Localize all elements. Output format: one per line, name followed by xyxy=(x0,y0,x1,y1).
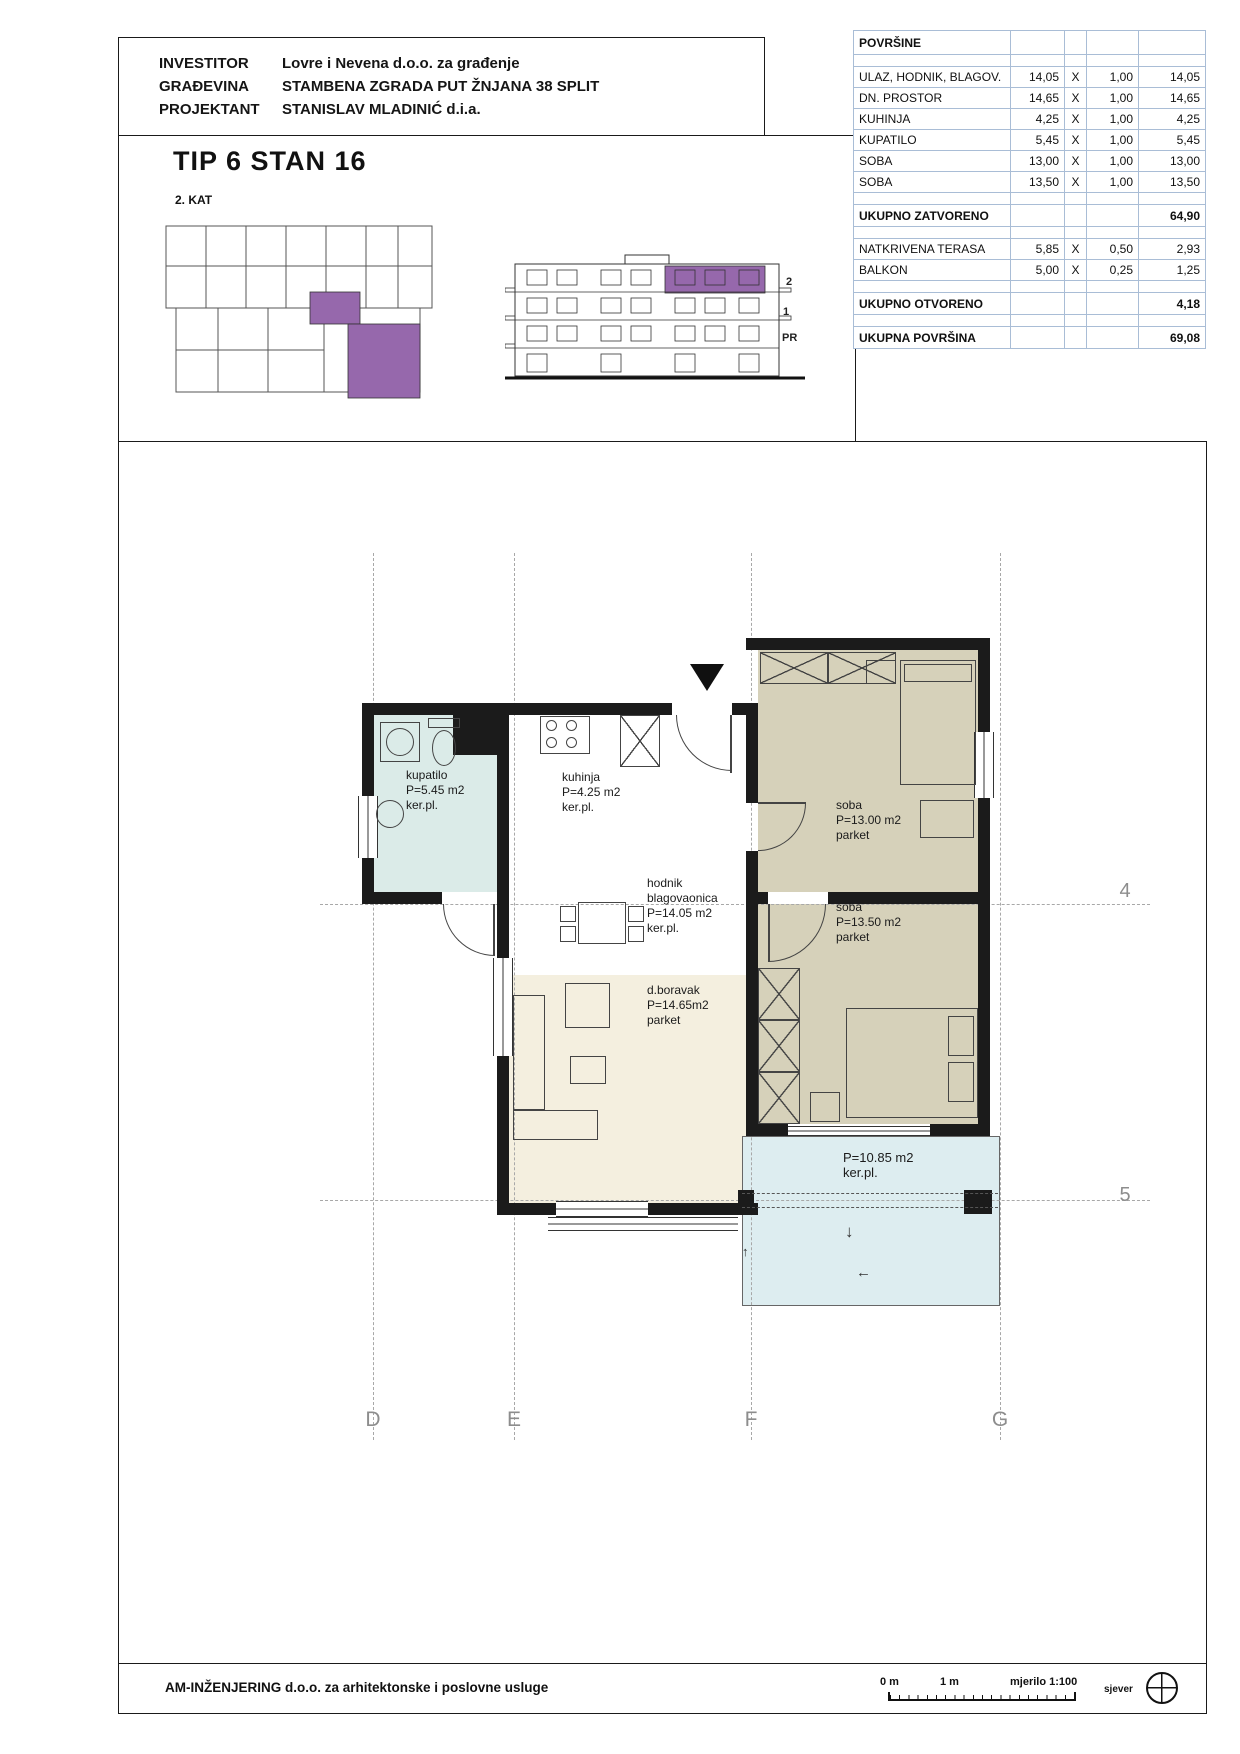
table-row: UKUPNO ZATVORENO64,90 xyxy=(854,205,1206,227)
cell-label: BALKON xyxy=(854,260,1011,281)
label-terasa: P=10.85 m2ker.pl. xyxy=(843,1150,913,1180)
terrace-dash-line xyxy=(742,1193,998,1194)
burner xyxy=(546,720,557,731)
door-leaf xyxy=(768,904,770,962)
chair xyxy=(628,906,644,922)
highlighted-unit-upper xyxy=(310,292,360,324)
desk xyxy=(920,800,974,838)
cell-label: KUHINJA xyxy=(854,109,1011,130)
page-title: TIP 6 STAN 16 xyxy=(173,146,367,177)
wall xyxy=(746,715,758,803)
label-kupatilo: kupatiloP=5.45 m2ker.pl. xyxy=(406,768,464,813)
table-row: KUPATILO5,45X1,005,45 xyxy=(854,130,1206,151)
grid-line-G xyxy=(1000,553,1001,1440)
wardrobe xyxy=(758,1072,800,1124)
up-arrow-icon: ↑ xyxy=(742,1244,749,1259)
balcony-door xyxy=(556,1201,648,1217)
chair xyxy=(560,926,576,942)
nightstand xyxy=(866,660,896,684)
wall xyxy=(497,715,509,892)
armchair xyxy=(565,983,610,1028)
table-row: NATKRIVENA TERASA5,85X0,502,93 xyxy=(854,239,1206,260)
drawing-sheet: INVESTITOR Lovre i Nevena d.o.o. za građ… xyxy=(0,0,1240,1754)
window xyxy=(974,732,994,798)
cell-label: SOBA xyxy=(854,172,1011,193)
designer-label: PROJEKTANT xyxy=(159,101,260,118)
wall xyxy=(930,1124,990,1136)
chair xyxy=(628,926,644,942)
sofa xyxy=(513,995,545,1110)
building-label: GRAĐEVINA xyxy=(159,78,249,95)
dining-table xyxy=(578,902,626,944)
building-elevation xyxy=(505,250,805,388)
table-row xyxy=(854,315,1206,327)
table-row: ULAZ, HODNIK, BLAGOV.14,05X1,0014,05 xyxy=(854,67,1206,88)
toilet xyxy=(432,730,456,766)
cell-label: ULAZ, HODNIK, BLAGOV. xyxy=(854,67,1011,88)
chair xyxy=(560,906,576,922)
table-row xyxy=(854,227,1206,239)
cell-label: POVRŠINE xyxy=(854,31,1011,55)
north-compass-icon xyxy=(1146,1672,1178,1704)
grid-label-E: E xyxy=(499,1408,529,1432)
elevation-floor-label-2: 2 xyxy=(786,276,792,288)
toilet-tank xyxy=(428,718,460,728)
grid-label-4: 4 xyxy=(1110,880,1140,903)
door-leaf xyxy=(493,904,495,956)
cell-label: UKUPNO ZATVORENO xyxy=(854,205,1011,227)
label-soba2: sobaP=13.50 m2parket xyxy=(836,900,901,945)
grid-label-F: F xyxy=(736,1408,766,1432)
burner xyxy=(546,737,557,748)
areas-table: POVRŠINE ULAZ, HODNIK, BLAGOV.14,05X1,00… xyxy=(853,30,1206,349)
wall xyxy=(746,638,990,650)
table-row: SOBA13,00X1,0013,00 xyxy=(854,151,1206,172)
scale-ratio-label: mjerilo 1:100 xyxy=(1010,1676,1077,1688)
scale-bar xyxy=(888,1692,1076,1701)
pillow xyxy=(948,1016,974,1056)
down-arrow-icon: ↓ xyxy=(845,1222,854,1242)
elevation-floor-label-pr: PR xyxy=(782,332,797,344)
door-leaf xyxy=(730,715,732,773)
wall xyxy=(362,892,442,904)
sink xyxy=(376,800,404,828)
wall xyxy=(746,904,758,1124)
cell-label: KUPATILO xyxy=(854,130,1011,151)
investor-title-block: INVESTITOR Lovre i Nevena d.o.o. za građ… xyxy=(118,37,765,137)
label-hodnik: hodnikblagovaonicaP=14.05 m2ker.pl. xyxy=(647,876,718,936)
table-row xyxy=(854,55,1206,67)
terrace-dash-line xyxy=(742,1207,998,1208)
nightstand xyxy=(810,1092,840,1122)
shaft xyxy=(620,715,660,767)
floor-subtitle: 2. KAT xyxy=(175,193,212,207)
cell-label: NATKRIVENA TERASA xyxy=(854,239,1011,260)
wall xyxy=(362,703,672,715)
cell-label: UKUPNO OTVORENO xyxy=(854,293,1011,315)
table-row: UKUPNO OTVORENO4,18 xyxy=(854,293,1206,315)
cell-label: UKUPNA POVRŠINA xyxy=(854,327,1011,349)
cell-label: SOBA xyxy=(854,151,1011,172)
burner xyxy=(566,720,577,731)
scale-one-label: 1 m xyxy=(940,1676,959,1688)
cell-label: DN. PROSTOR xyxy=(854,88,1011,109)
grid-line-D xyxy=(373,553,374,1440)
washing-machine-drum xyxy=(386,728,414,756)
left-arrow-icon: ← xyxy=(856,1264,871,1281)
pillow xyxy=(948,1062,974,1102)
wardrobe xyxy=(760,652,828,684)
sofa xyxy=(513,1110,598,1140)
designer-value: STANISLAV MLADINIĆ d.i.a. xyxy=(282,101,481,118)
wardrobe xyxy=(758,968,800,1020)
table-row: POVRŠINE xyxy=(854,31,1206,55)
grid-label-D: D xyxy=(358,1408,388,1432)
north-label: sjever xyxy=(1104,1684,1133,1695)
sliding-door xyxy=(788,1126,930,1136)
building-value: STAMBENA ZGRADA PUT ŽNJANA 38 SPLIT xyxy=(282,78,599,95)
wardrobe xyxy=(758,1020,800,1072)
label-kuhinja: kuhinjaP=4.25 m2ker.pl. xyxy=(562,770,620,815)
window xyxy=(493,958,513,1056)
balcony-railing xyxy=(548,1217,738,1231)
scale-zero-label: 0 m xyxy=(880,1676,899,1688)
elevation-floor-label-1: 1 xyxy=(783,306,789,318)
key-plan-thumbnail xyxy=(158,220,440,400)
grid-label-5: 5 xyxy=(1110,1184,1140,1207)
label-soba1: sobaP=13.00 m2parket xyxy=(836,798,901,843)
grid-line-5 xyxy=(320,1200,1150,1201)
table-row xyxy=(854,281,1206,293)
pillow xyxy=(904,664,972,682)
coffee-table xyxy=(570,1056,606,1084)
door-leaf xyxy=(758,802,806,804)
entry-marker-triangle xyxy=(690,664,724,691)
wall xyxy=(746,1124,788,1136)
grid-label-G: G xyxy=(985,1408,1015,1432)
wall xyxy=(746,892,768,904)
label-dnevni-boravak: d.boravakP=14.65m2parket xyxy=(647,983,709,1028)
table-row xyxy=(854,193,1206,205)
company-name: AM-INŽENJERING d.o.o. za arhitektonske i… xyxy=(165,1680,548,1695)
investor-value: Lovre i Nevena d.o.o. za građenje xyxy=(282,55,520,72)
highlighted-unit xyxy=(348,324,420,398)
burner xyxy=(566,737,577,748)
table-row: SOBA13,50X1,0013,50 xyxy=(854,172,1206,193)
table-row: KUHINJA4,25X1,004,25 xyxy=(854,109,1206,130)
table-row: BALKON5,00X0,251,25 xyxy=(854,260,1206,281)
table-row: UKUPNA POVRŠINA69,08 xyxy=(854,327,1206,349)
wall xyxy=(732,703,758,715)
investor-label: INVESTITOR xyxy=(159,55,249,72)
wall xyxy=(746,851,758,892)
window xyxy=(358,796,378,858)
table-row: DN. PROSTOR14,65X1,0014,65 xyxy=(854,88,1206,109)
